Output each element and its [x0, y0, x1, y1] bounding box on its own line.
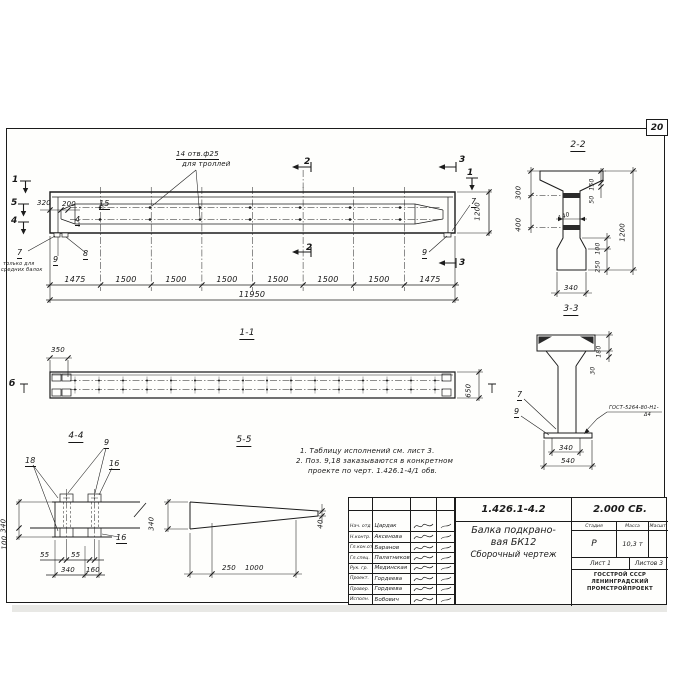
dim-1500-c: 1500: [216, 276, 237, 285]
titleblock-empty-row: [349, 510, 454, 522]
weld-note-line2: Δ4: [644, 413, 651, 419]
row-date: [437, 585, 454, 594]
pos-9-right: 9: [422, 249, 427, 259]
elevation-trolley-holes: [99, 206, 402, 221]
dim-320: 320: [37, 200, 51, 208]
section-marker-1-left: 1: [12, 176, 18, 186]
titleblock-signature-table: Нач. отдЦардакН.контр.АксеноваГл.кон.отд…: [348, 497, 455, 605]
plan-hole-ticks: [75, 377, 435, 394]
elevation-centerlines: [70, 170, 440, 291]
holes-note-line1: 14 отв.ф25: [176, 151, 219, 160]
pos-8: 8: [83, 250, 88, 260]
dim-1500-f: 1500: [368, 276, 389, 285]
sheet-count-current: Лист 1: [571, 557, 629, 569]
titleblock-row: Исполн.Бобович: [349, 594, 454, 604]
row-signature: [411, 553, 437, 562]
doc-number: 1.426.1-4.2: [456, 498, 571, 521]
dim-1475-b: 1475: [419, 276, 440, 285]
row-signature: [411, 543, 437, 552]
dim-1500-d: 1500: [267, 276, 288, 285]
section-title-3-3: 3-3: [563, 305, 578, 316]
dim-40: 40: [317, 519, 325, 528]
row-date: [437, 553, 454, 562]
titleblock-row: Рук. гр.Мединская: [349, 563, 454, 573]
elevation-leaders: [28, 170, 470, 256]
dim-55-b: 55: [71, 552, 80, 560]
section-marker-4: 4: [11, 217, 17, 227]
pos-7-33: 7: [517, 391, 522, 401]
row-name: Бобович: [373, 595, 411, 604]
titleblock-row: Гл.кон.отдБаранов: [349, 542, 454, 552]
titleblock-row: Провер.Гордеева: [349, 584, 454, 594]
drawing-title-line2: вая БК12: [491, 537, 537, 549]
row-role: Н.контр.: [349, 532, 373, 541]
titleblock-row: Нач. отдЦардак: [349, 521, 454, 531]
pos-18: 18: [25, 457, 36, 467]
drawing-page: 20: [0, 0, 700, 700]
dim-100-22: 100: [595, 243, 602, 255]
plan-centerlines: [70, 381, 445, 390]
pos-4: 4: [75, 216, 80, 226]
plan-outline: [50, 372, 455, 398]
pos-16-bottom: 16: [116, 534, 127, 544]
pos-7-left: 7: [17, 249, 22, 259]
row-name: Аксенова: [373, 532, 411, 541]
dim-300: 300: [515, 186, 523, 200]
row-role: Провер.: [349, 585, 373, 594]
holes-note-line2: для троллей: [182, 161, 231, 169]
row-name: Мединская: [373, 564, 411, 573]
dim-1000: 1000: [245, 565, 264, 573]
row-name: Гордеева: [373, 574, 411, 583]
row-role: Гл.спец.: [349, 553, 373, 562]
dim-55-a: 55: [40, 552, 49, 560]
row-signature: [411, 521, 437, 531]
note-2: 2. Поз. 9,18 заказываются в конкретном: [296, 458, 453, 466]
section-marker-3-bottom: 3: [459, 259, 465, 269]
row-role: Проект.: [349, 574, 373, 583]
row-name: Палатников: [373, 553, 411, 562]
dim-350: 350: [51, 347, 65, 355]
row-date: [437, 564, 454, 573]
dim-1500-a: 1500: [115, 276, 136, 285]
section44-linework: [16, 448, 146, 578]
titleblock-row: Проект.Гордеева: [349, 573, 454, 583]
row-name: Гордеева: [373, 585, 411, 594]
dim-340-55: 340: [148, 517, 156, 531]
section-marker-b-left: б: [9, 380, 15, 390]
note-2-continued: проекте по черт. 1.426.1-4/1 обв.: [308, 468, 437, 476]
col-header-stage: Стадия: [571, 521, 616, 530]
col-header-scale: Масшт.: [648, 521, 668, 530]
dim-400: 400: [515, 218, 523, 232]
note-1: 1. Таблицу исполнений см. лист 3.: [300, 448, 435, 456]
pos-9-left: 9: [53, 256, 58, 266]
row-signature: [411, 595, 437, 604]
weld-note-line1: ГОСТ-5264-80-Н1-: [609, 406, 659, 412]
pos-16-top: 16: [109, 460, 120, 470]
row-role: Исполн.: [349, 595, 373, 604]
dim-1500-e: 1500: [317, 276, 338, 285]
drawing-title: Балка подкрано- вая БК12 Сборочный черте…: [456, 521, 571, 606]
dim-1475-a: 1475: [64, 276, 85, 285]
section-title-5-5: 5-5: [236, 436, 251, 447]
dim-1500-b: 1500: [165, 276, 186, 285]
organization: ГОССТРОЙ СССР ЛЕНИНГРАДСКИЙ ПРОМСТРОЙПРО…: [571, 569, 668, 606]
plan-dimensions: [20, 358, 496, 401]
org-line1: ГОССТРОЙ СССР: [594, 572, 646, 579]
titleblock-empty-row: [349, 498, 454, 510]
col-header-mass: Масса: [616, 521, 648, 530]
row-role: Гл.кон.отд: [349, 543, 373, 552]
row-signature: [411, 574, 437, 583]
row-name: Цардак: [373, 521, 411, 531]
dim-340-44-bottom: 340: [61, 567, 75, 575]
dim-650: 650: [465, 384, 473, 398]
scale-value: [648, 530, 668, 557]
row-role: Нач. отд: [349, 521, 373, 531]
dim-540: 540: [561, 458, 575, 466]
row-signature: [411, 532, 437, 541]
row-role: Рук. гр.: [349, 564, 373, 573]
plan-holes: [74, 380, 436, 391]
row-date: [437, 543, 454, 552]
section-marker-2-top: 2: [304, 158, 310, 168]
titleblock-main: 1.426.1-4.2 2.000 СБ. Балка подкрано- ва…: [455, 497, 667, 605]
dim-30: 30: [590, 367, 597, 375]
section-title-1-1: 1-1: [239, 329, 254, 340]
drawing-title-line1: Балка подкрано-: [471, 525, 556, 537]
section-marker-1-right: 1: [467, 169, 473, 179]
dim-250-22: 250: [595, 261, 602, 273]
sheet-count-total: Листов 3: [629, 557, 668, 569]
section33-linework: [521, 331, 662, 470]
row-date: [437, 521, 454, 531]
dim-340-22: 340: [564, 285, 578, 293]
section-title-2-2: 2-2: [570, 141, 585, 152]
dim-180: 180: [596, 346, 603, 358]
row-date: [437, 532, 454, 541]
doc-series: 2.000 СБ.: [571, 498, 668, 521]
section-marker-5: 5: [11, 199, 17, 209]
dim-100-44: 100: [1, 536, 9, 550]
row-name: Баранов: [373, 543, 411, 552]
titleblock-row: Н.контр.Аксенова: [349, 531, 454, 541]
pos-15: 15: [99, 200, 110, 210]
dim-200: 200: [62, 201, 76, 209]
dim-340-44-left: 340: [0, 519, 8, 533]
row-signature: [411, 564, 437, 573]
row-date: [437, 574, 454, 583]
dim-250: 250: [222, 565, 236, 573]
stage-value: Р: [571, 530, 616, 557]
pos-9-44: 9: [104, 439, 109, 449]
dim-1200-elevation: 1200: [474, 202, 482, 221]
row-date: [437, 595, 454, 604]
dim-160: 160: [86, 567, 100, 575]
section-marker-3-top: 3: [459, 156, 465, 166]
dim-340-33: 340: [559, 445, 573, 453]
dim-150: 150: [589, 179, 596, 191]
section-title-4-4: 4-4: [68, 432, 83, 443]
middle-beam-note-line2: средних балок: [1, 268, 43, 274]
row-signature: [411, 585, 437, 594]
titleblock-row: Гл.спец.Палатников: [349, 552, 454, 562]
dim-1200-22: 1200: [619, 223, 627, 242]
dim-50: 50: [589, 196, 596, 204]
pos-9-33: 9: [514, 408, 519, 418]
section-marker-2-bottom: 2: [306, 244, 312, 254]
dim-total-11950: 11950: [239, 291, 265, 300]
org-line2: ЛЕНИНГРАДСКИЙ: [591, 579, 648, 586]
mass-value: 10,3 т: [616, 530, 648, 557]
org-line3: ПРОМСТРОЙПРОЕКТ: [587, 586, 653, 593]
drawing-title-line3: Сборочный чертеж: [471, 549, 557, 561]
